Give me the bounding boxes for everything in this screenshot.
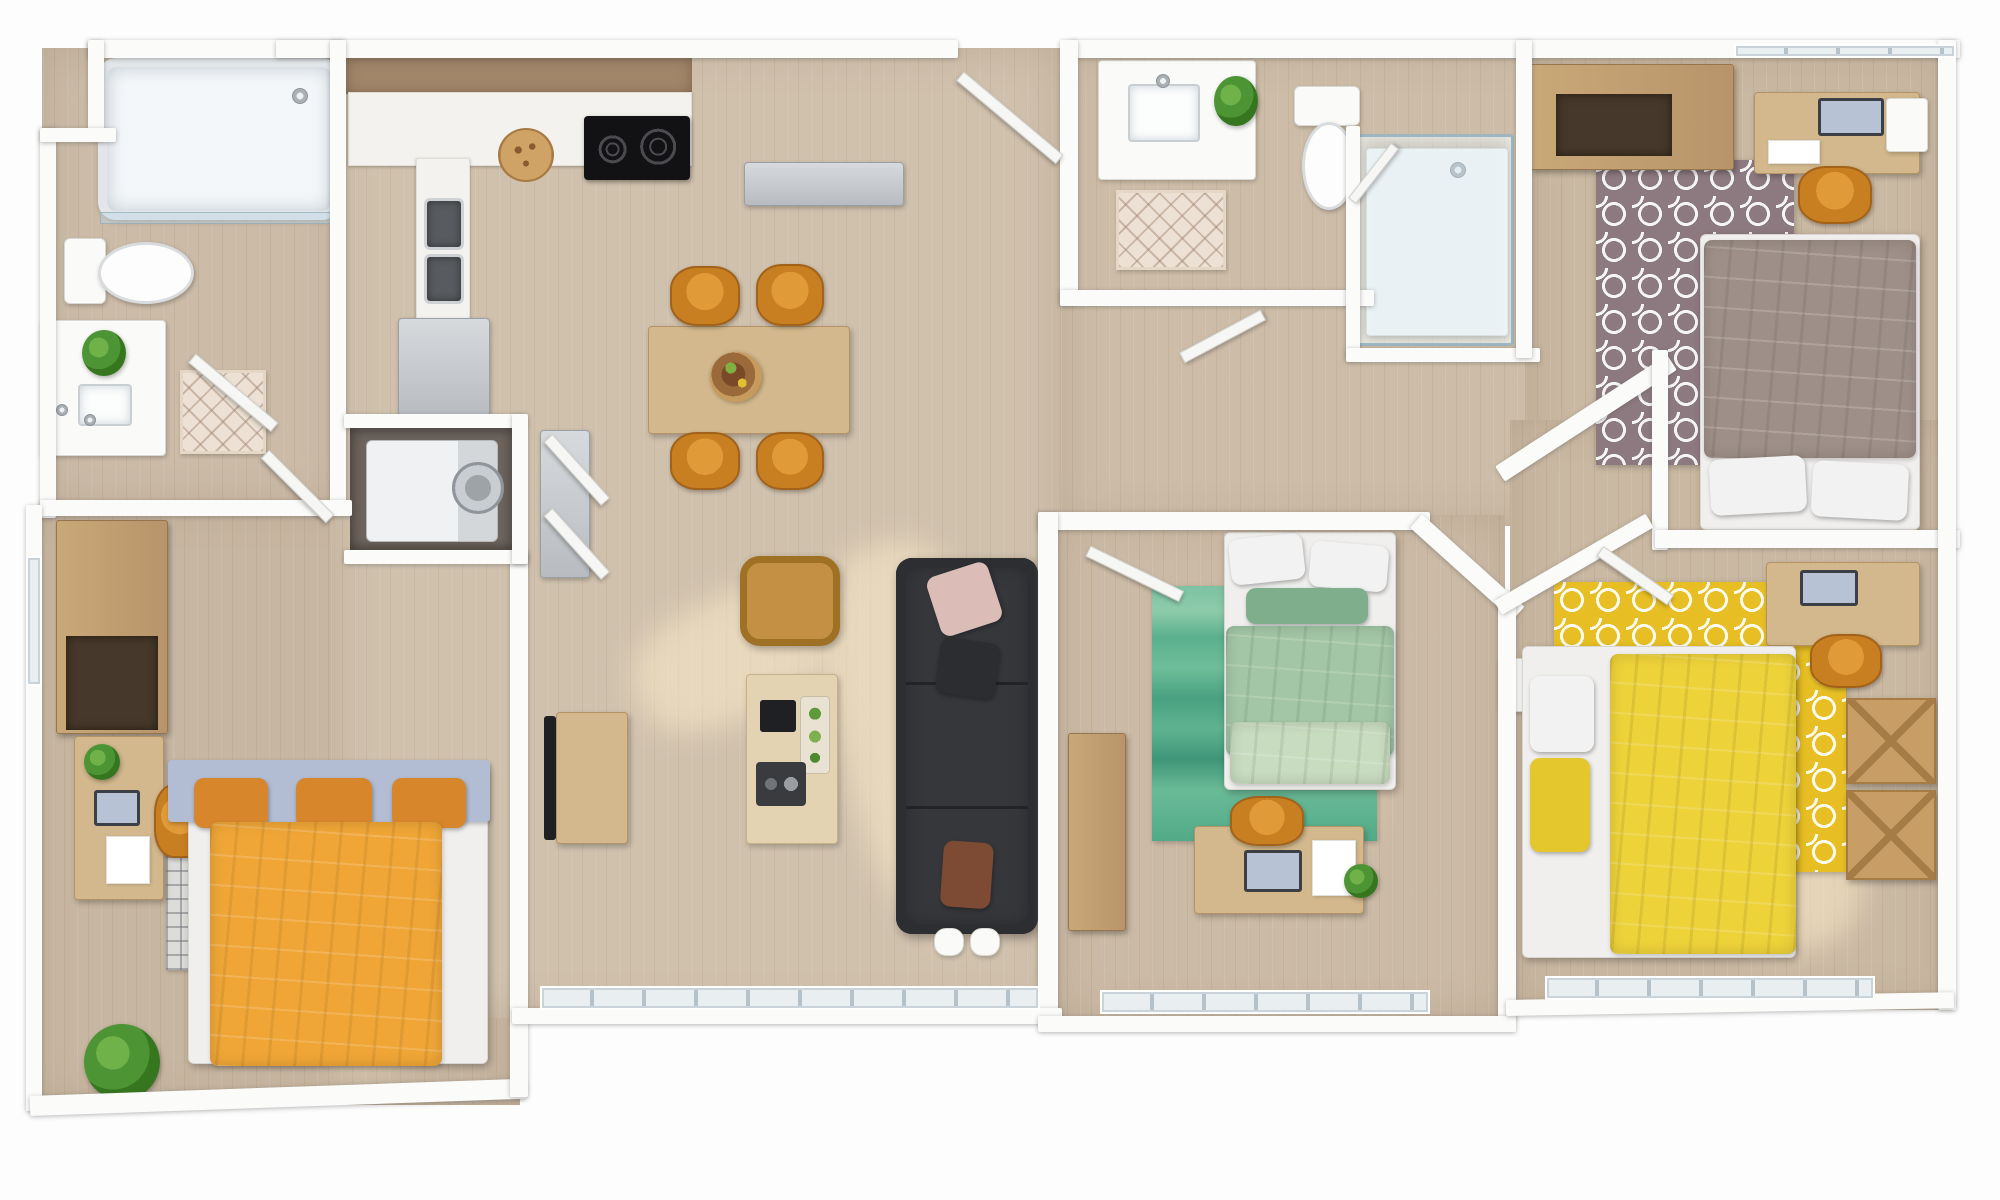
bed-pillow-b-top-right [1811, 460, 1910, 521]
paper-bedroom-left [106, 836, 150, 884]
window-bedroom-top-right [1734, 44, 1956, 58]
vanity-sink-bath2 [1128, 84, 1200, 142]
kitchen-sink-upper [424, 198, 464, 250]
tv-screen [544, 716, 556, 840]
wall-bedroom-top-right-bottom [1655, 530, 1960, 548]
chair-green-room [1230, 796, 1304, 846]
wall-living-green-divider [1038, 512, 1058, 1020]
sofa-seam-2 [906, 806, 1028, 809]
bed-pillow-a-green [1228, 532, 1306, 585]
slipper-right [970, 928, 1000, 956]
laptop-green-room [1244, 850, 1302, 892]
duvet-green-lower [1230, 722, 1390, 784]
duvet-orange [210, 822, 442, 1066]
coffee-table-tray-dark [756, 762, 806, 806]
slipper-left [934, 928, 964, 956]
wall-green-room-bottom [1038, 1016, 1516, 1032]
fridge [398, 318, 490, 416]
wardrobe-open-section-top-right [1556, 94, 1672, 156]
duvet-taupe-top-right [1704, 240, 1916, 458]
wardrobe-open-section-left [66, 636, 158, 730]
floor-plan-canvas [0, 0, 2000, 1200]
wall-green-yellow-divider [1498, 598, 1516, 1020]
vanity-plant-bath1 [82, 330, 126, 376]
bed-pillow-a-top-right [1709, 455, 1808, 516]
window-yellow-room-bottom [1545, 976, 1875, 1000]
wall-bath1-kitchen [330, 40, 346, 512]
chair-yellow-room [1810, 634, 1882, 688]
wall-green-room-top [1038, 512, 1430, 530]
bathtub [98, 58, 340, 220]
duvet-yellow [1610, 654, 1796, 954]
window-bedroom-left [26, 556, 42, 686]
tv-console [556, 712, 628, 844]
laptop-bedroom-left [94, 790, 140, 826]
monitor-yellow-room [1800, 570, 1858, 606]
bed-pillow-b-green [1308, 540, 1390, 593]
plant-desk-bedroom-left [84, 744, 120, 780]
kitchen-sink-lower [424, 254, 464, 304]
dining-chair-3 [670, 432, 740, 490]
wall-living-bottom [512, 1008, 1062, 1024]
wall-shower-bottom [1346, 348, 1540, 362]
bed-lumbar-pillow-green [1246, 588, 1368, 624]
leather-armchair [740, 556, 840, 646]
kitchen-cooktop [584, 116, 690, 180]
dining-chair-4 [756, 432, 824, 490]
bed-pillow-orange-2 [296, 778, 372, 828]
vanity-plant-bath2 [1214, 76, 1258, 126]
monitor-bedroom-top-right [1818, 98, 1884, 136]
kitchen-cutting-board [498, 128, 554, 182]
entry-sideboard [744, 162, 904, 206]
tablet-bedroom-top-right [1886, 98, 1928, 152]
wall-bath2-left [1060, 40, 1078, 304]
wardrobe-green-room [1068, 733, 1126, 931]
wall-bath1-step [40, 128, 116, 142]
wall-laundry-top [344, 414, 526, 428]
wall-shower-left [1346, 126, 1360, 360]
window-green-room-bottom [1100, 990, 1430, 1014]
kitchen-upper-wall-band [346, 58, 692, 94]
coffee-table-camera [760, 700, 796, 732]
wall-right-outer [1938, 40, 1956, 1010]
wall-bedroom-top-right-notch [1652, 350, 1668, 550]
wall-nook-left [88, 40, 104, 140]
toilet-bowl-bath1 [98, 242, 194, 304]
vanity-faucet-a-bath1 [56, 404, 68, 416]
bed-pillow-orange-3 [392, 778, 466, 828]
chair-bedroom-top-right [1798, 166, 1872, 224]
wall-bath2-bottom [1060, 290, 1374, 306]
sofa-pillow-brown [940, 840, 994, 909]
wall-bath1-left [40, 128, 56, 518]
bed-pillow-orange-1 [194, 778, 268, 828]
rug-bathroom-2 [1116, 190, 1226, 270]
vanity-faucet-bath2 [1156, 74, 1170, 88]
bed-pillow-white-yellow-room [1530, 676, 1594, 752]
dining-chair-1 [670, 266, 740, 326]
wall-top-main [276, 40, 958, 58]
plant-floor-bedroom-left [84, 1024, 160, 1100]
dining-chair-2 [756, 264, 824, 326]
vanity-faucet-b-bath1 [84, 414, 96, 426]
fruit-bowl [710, 352, 762, 402]
bathtub-faucet [292, 88, 308, 104]
bed-pillow-yellow [1530, 758, 1590, 852]
window-living-bottom [540, 986, 1040, 1010]
wall-laundry-bottom [344, 550, 528, 564]
washer-drum [452, 462, 504, 514]
moving-box-upper [1846, 698, 1936, 784]
sofa-pillow-black [934, 636, 1001, 700]
bathtub-glass-screen [100, 212, 338, 224]
moving-box-lower [1846, 790, 1936, 880]
wall-bedroom-top-right-left [1516, 40, 1532, 358]
wall-laundry-right [512, 414, 528, 564]
desk-paper-top-right [1768, 140, 1820, 164]
toilet-tank-bath2 [1294, 86, 1360, 126]
plant-green-room [1344, 864, 1378, 898]
